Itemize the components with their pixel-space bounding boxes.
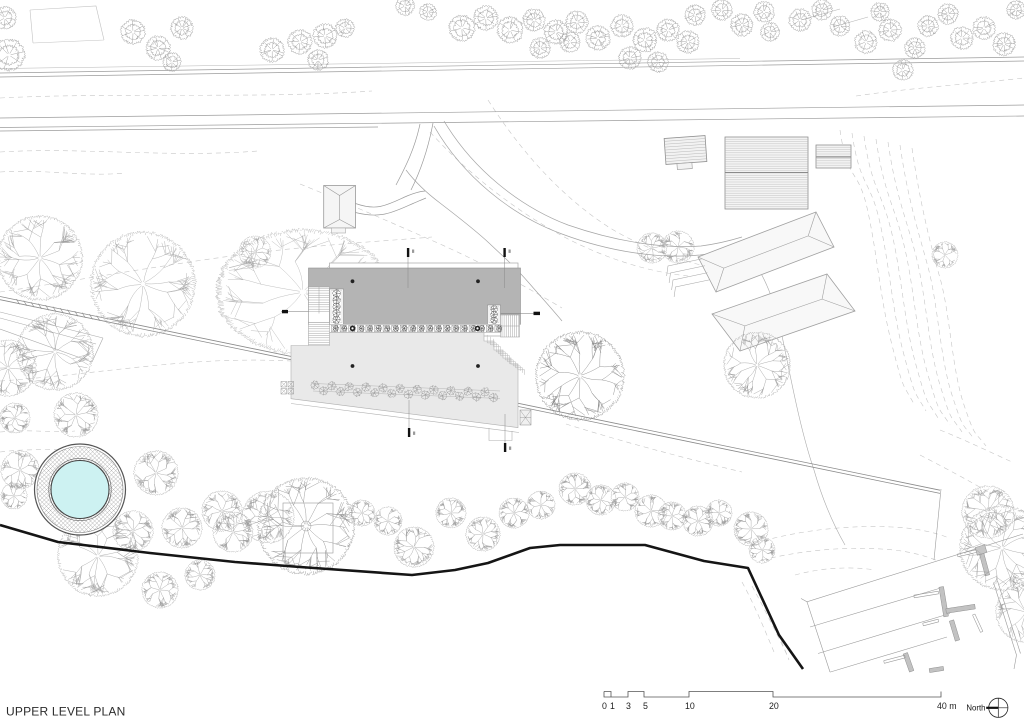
svg-text:0: 0	[602, 701, 607, 711]
svg-text:1: 1	[610, 701, 615, 711]
svg-text:5: 5	[643, 701, 648, 711]
svg-text:20: 20	[769, 701, 779, 711]
svg-text:10: 10	[685, 701, 695, 711]
svg-text:3: 3	[626, 701, 631, 711]
svg-text:40 m: 40 m	[937, 701, 957, 711]
svg-text:UPPER LEVEL PLAN: UPPER LEVEL PLAN	[6, 705, 125, 719]
svg-text:North: North	[966, 704, 985, 713]
